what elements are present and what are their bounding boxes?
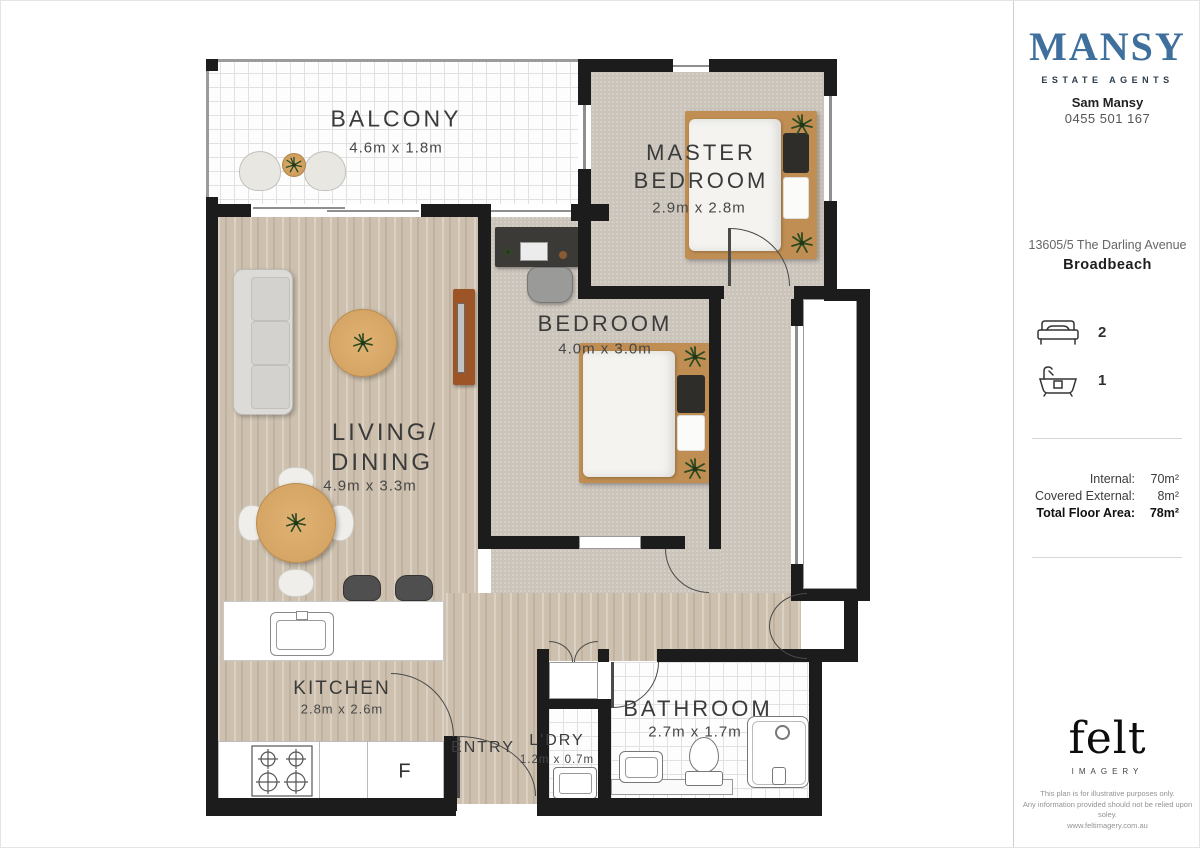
- corridor-floor: [721, 296, 801, 593]
- listing-address: 13605/5 The Darling Avenue: [1014, 238, 1200, 252]
- wall: [791, 299, 803, 326]
- wall: [478, 204, 491, 549]
- tub-basin: [559, 773, 592, 794]
- master-bedroom-label: MASTER: [646, 140, 756, 166]
- window: [583, 105, 586, 169]
- disclaimer-line: Any information provided should not be r…: [1014, 800, 1200, 821]
- imagery-website: www.feltimagery.com.au: [1014, 821, 1200, 832]
- wall: [571, 204, 609, 221]
- listing-suburb: Broadbeach: [1014, 257, 1200, 273]
- window: [795, 326, 798, 564]
- sofa-cushion: [251, 365, 290, 409]
- agent-name: Sam Mansy: [1014, 95, 1200, 110]
- disclaimer: This plan is for illustrative purposes o…: [1014, 789, 1200, 831]
- office-chair: [527, 267, 573, 303]
- total-area-label: Total Floor Area:: [1036, 505, 1135, 522]
- dining-chair: [278, 569, 314, 597]
- balcony-railing: [206, 59, 579, 62]
- wall: [478, 536, 579, 549]
- balcony-railing: [206, 59, 209, 204]
- plant-icon: [790, 231, 814, 255]
- divider: [1032, 438, 1182, 439]
- external-area-label: Covered External:: [1035, 488, 1135, 505]
- shower-head: [775, 725, 790, 740]
- bed-icon: [1036, 317, 1080, 347]
- bedroom-dims: 4.0m x 3.0m: [558, 341, 652, 358]
- bedrooms-count: 2: [1098, 324, 1106, 341]
- bedrooms-feature: 2: [1036, 317, 1106, 347]
- sofa: [233, 269, 293, 415]
- wall: [791, 564, 803, 594]
- counter-divider: [367, 742, 368, 800]
- bathrooms-count: 1: [1098, 372, 1106, 389]
- imagery-logo-sub: IMAGERY: [1014, 767, 1200, 776]
- plant-icon: [683, 345, 707, 369]
- wall: [844, 589, 858, 649]
- wall: [809, 649, 822, 809]
- living-dining-dims: 4.9m x 3.3m: [323, 478, 417, 495]
- faucet: [296, 611, 308, 620]
- wall: [537, 798, 822, 816]
- kitchen-island: [223, 601, 444, 661]
- built-in-robe: [579, 536, 641, 549]
- internal-area-value: 70m²: [1135, 471, 1179, 488]
- balcony-chair: [304, 151, 346, 191]
- balcony-label: BALCONY: [331, 106, 462, 133]
- balcony-chair: [239, 151, 281, 191]
- plant-icon: [352, 332, 374, 354]
- sink-basin: [276, 620, 326, 650]
- sofa-cushion: [251, 277, 290, 321]
- bar-stool: [395, 575, 433, 601]
- plant-icon: [285, 156, 303, 174]
- bath-icon: [1036, 363, 1080, 397]
- disclaimer-line: This plan is for illustrative purposes o…: [1014, 789, 1200, 800]
- divider: [1032, 557, 1182, 558]
- balcony-dims: 4.6m x 1.8m: [349, 140, 443, 157]
- sink-basin: [625, 757, 658, 778]
- tv: [457, 303, 465, 373]
- entry-label: ENTRY: [451, 739, 515, 757]
- toilet: [689, 737, 719, 773]
- wall: [857, 289, 870, 601]
- laptop: [520, 242, 548, 261]
- living-dining-label: LIVING/: [332, 419, 438, 447]
- imagery-logo: felt: [1014, 717, 1200, 761]
- kitchen-sink: [270, 612, 334, 656]
- wall: [578, 286, 724, 299]
- stove-icon: [251, 745, 313, 797]
- duvet: [583, 351, 675, 477]
- agency-logo: MANSY: [1014, 23, 1200, 70]
- shower: [747, 716, 809, 788]
- window: [673, 65, 709, 67]
- master-bedroom-dims: 2.9m x 2.8m: [652, 200, 746, 217]
- bedroom-label: BEDROOM: [538, 311, 673, 337]
- wall: [709, 299, 721, 549]
- bar-stool: [343, 575, 381, 601]
- laundry-tub: [553, 767, 597, 799]
- plant-icon: [501, 245, 515, 259]
- sliding-door-panel: [253, 207, 345, 209]
- floorplan-page: F: [0, 0, 1200, 848]
- window: [491, 210, 571, 212]
- info-sidebar: MANSY ESTATE AGENTS Sam Mansy 0455 501 1…: [1013, 1, 1200, 848]
- total-area-value: 78m²: [1135, 505, 1179, 522]
- kitchen-dims: 2.8m x 2.6m: [301, 702, 384, 717]
- agent-phone: 0455 501 167: [1014, 111, 1200, 126]
- fridge-label: F: [398, 761, 411, 784]
- internal-area-row: Internal: 70m²: [1014, 471, 1200, 488]
- sliding-door-panel: [327, 210, 419, 212]
- external-area-value: 8m²: [1135, 488, 1179, 505]
- wall: [206, 197, 218, 816]
- wardrobe: [803, 299, 857, 589]
- wall: [598, 699, 611, 809]
- linen-cupboard: [549, 662, 598, 699]
- shower-fitting: [772, 767, 786, 785]
- counter-divider: [319, 742, 320, 800]
- plant-icon: [683, 457, 707, 481]
- pillow-dark: [783, 133, 809, 173]
- toilet-tank: [685, 771, 723, 786]
- plant-icon: [790, 113, 814, 137]
- total-area-row: Total Floor Area: 78m²: [1014, 505, 1200, 522]
- agency-tagline: ESTATE AGENTS: [1014, 75, 1200, 85]
- window: [829, 96, 832, 201]
- internal-area-label: Internal:: [1090, 471, 1135, 488]
- vanity-sink: [619, 751, 663, 783]
- laundry-dims: 1.2m x 0.7m: [520, 754, 594, 766]
- external-area-row: Covered External: 8m²: [1014, 488, 1200, 505]
- pillow: [677, 415, 705, 451]
- wall: [537, 649, 549, 809]
- pillow: [783, 177, 809, 219]
- pillow-dark: [677, 375, 705, 413]
- bathroom-label: BATHROOM: [623, 696, 772, 722]
- laundry-label: L'DRY: [529, 732, 584, 750]
- wall: [598, 649, 609, 662]
- wall: [657, 649, 858, 662]
- living-dining-label: DINING: [331, 449, 433, 477]
- plant-icon: [285, 512, 307, 534]
- floor-areas: Internal: 70m² Covered External: 8m² Tot…: [1014, 471, 1200, 522]
- master-bedroom-label: BEDROOM: [634, 168, 769, 194]
- bathrooms-feature: 1: [1036, 363, 1106, 397]
- wall: [578, 59, 591, 105]
- mug: [559, 251, 567, 259]
- wall: [206, 59, 218, 71]
- sofa-cushion: [251, 321, 290, 365]
- wall: [641, 536, 685, 549]
- bathroom-dims: 2.7m x 1.7m: [648, 724, 742, 741]
- tv-cabinet: [453, 289, 475, 385]
- kitchen-label: KITCHEN: [293, 678, 390, 700]
- wall: [578, 169, 591, 299]
- wall: [206, 798, 456, 816]
